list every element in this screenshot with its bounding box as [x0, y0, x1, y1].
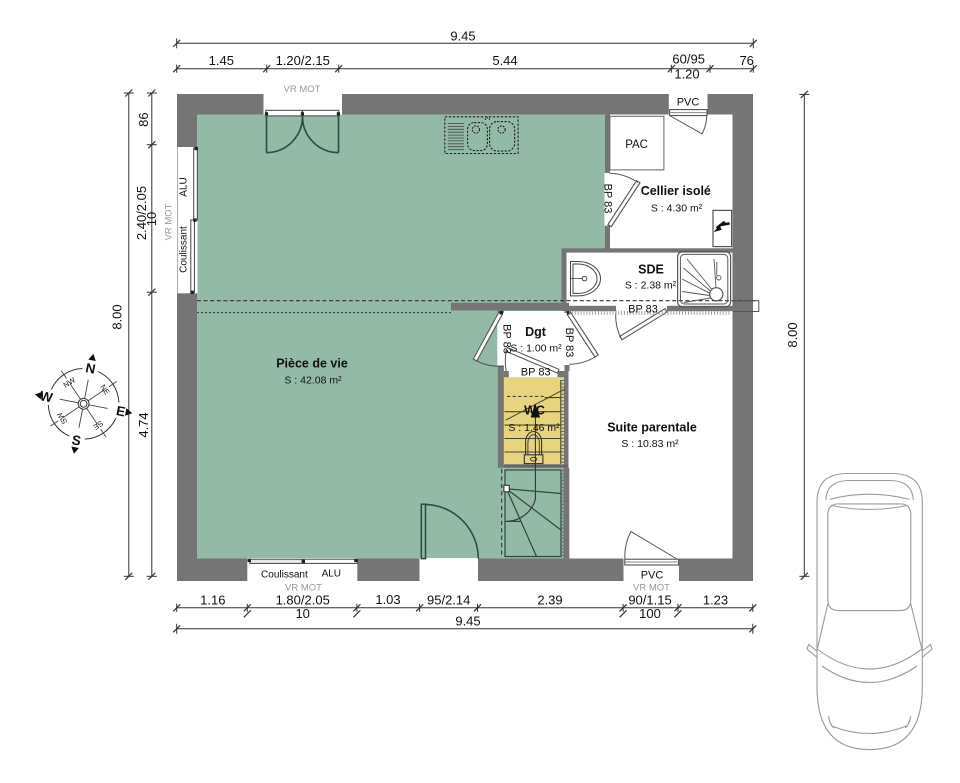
svg-text:100: 100	[639, 606, 661, 621]
svg-text:PVC: PVC	[641, 570, 664, 582]
svg-text:VR MOT: VR MOT	[164, 203, 175, 240]
svg-text:2.39: 2.39	[537, 592, 562, 607]
svg-text:Dgt: Dgt	[525, 325, 547, 339]
svg-text:S : 1.46 m²: S : 1.46 m²	[508, 422, 560, 434]
svg-text:4.74: 4.74	[136, 412, 151, 437]
svg-text:PVC: PVC	[677, 97, 700, 109]
svg-text:1.03: 1.03	[375, 592, 400, 607]
svg-text:BP 83: BP 83	[563, 328, 575, 358]
svg-text:Coulissant: Coulissant	[261, 570, 308, 581]
svg-text:1.16: 1.16	[200, 593, 225, 608]
svg-text:1.45: 1.45	[209, 53, 234, 68]
svg-text:ALU: ALU	[322, 569, 341, 580]
svg-text:S : 10.83 m²: S : 10.83 m²	[621, 438, 679, 450]
svg-text:5.44: 5.44	[492, 53, 517, 68]
svg-text:S : 1.00 m²: S : 1.00 m²	[510, 342, 562, 354]
svg-text:S : 2.38 m²: S : 2.38 m²	[625, 279, 677, 291]
svg-text:VR MOT: VR MOT	[284, 84, 321, 95]
svg-text:1.23: 1.23	[703, 592, 728, 607]
svg-text:S : 4.30 m²: S : 4.30 m²	[651, 202, 703, 214]
svg-text:BP 83: BP 83	[521, 367, 551, 379]
svg-text:1.20: 1.20	[674, 66, 699, 81]
svg-text:10: 10	[144, 212, 159, 226]
svg-text:BP 83: BP 83	[501, 324, 513, 354]
svg-text:76: 76	[739, 53, 753, 68]
svg-text:1.20/2.15: 1.20/2.15	[276, 53, 330, 68]
svg-text:10: 10	[295, 606, 309, 621]
svg-text:60/95: 60/95	[672, 51, 705, 66]
svg-text:Cellier isolé: Cellier isolé	[641, 184, 711, 198]
svg-text:S : 42.08 m²: S : 42.08 m²	[284, 375, 342, 387]
svg-text:ALU: ALU	[179, 177, 190, 196]
svg-text:SDE: SDE	[638, 263, 664, 277]
svg-text:BP 83: BP 83	[602, 184, 614, 214]
svg-text:8.00: 8.00	[110, 304, 125, 329]
svg-text:86: 86	[136, 112, 151, 126]
svg-text:9.45: 9.45	[455, 614, 480, 629]
svg-text:9.45: 9.45	[450, 28, 475, 43]
svg-text:Coulissant: Coulissant	[179, 226, 190, 273]
svg-text:BP 83: BP 83	[628, 304, 658, 316]
svg-text:Pièce de vie: Pièce de vie	[276, 357, 348, 371]
svg-text:PAC: PAC	[625, 139, 648, 151]
svg-text:WC: WC	[524, 404, 545, 418]
svg-text:8.00: 8.00	[785, 322, 800, 347]
svg-text:Suite parentale: Suite parentale	[607, 420, 697, 434]
svg-text:95/2.14: 95/2.14	[427, 592, 470, 607]
